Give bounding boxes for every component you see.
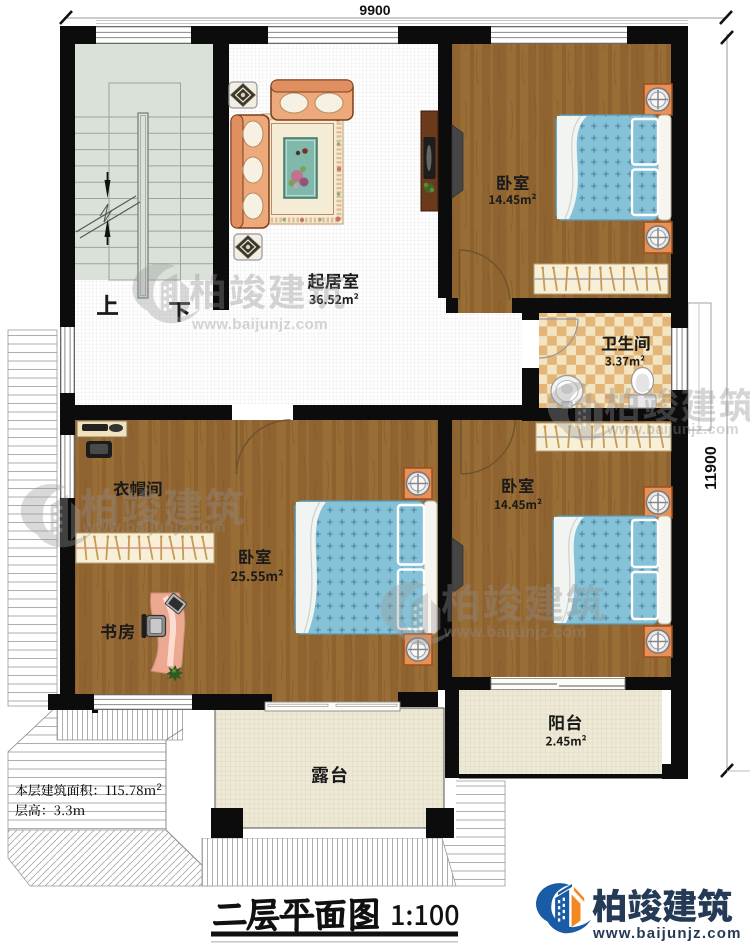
svg-text:11900: 11900 xyxy=(703,446,720,490)
svg-text:9900: 9900 xyxy=(359,2,390,18)
svg-text:www.baijunjz.com: www.baijunjz.com xyxy=(443,624,587,641)
svg-text:www.baijunjz.com: www.baijunjz.com xyxy=(191,316,328,333)
svg-text:2: 2 xyxy=(157,782,162,793)
svg-text:www.baijunjz.com: www.baijunjz.com xyxy=(592,925,742,942)
svg-text:www.baijunjz.com: www.baijunjz.com xyxy=(82,519,226,536)
svg-text:www.baijunjz.com: www.baijunjz.com xyxy=(606,422,739,438)
